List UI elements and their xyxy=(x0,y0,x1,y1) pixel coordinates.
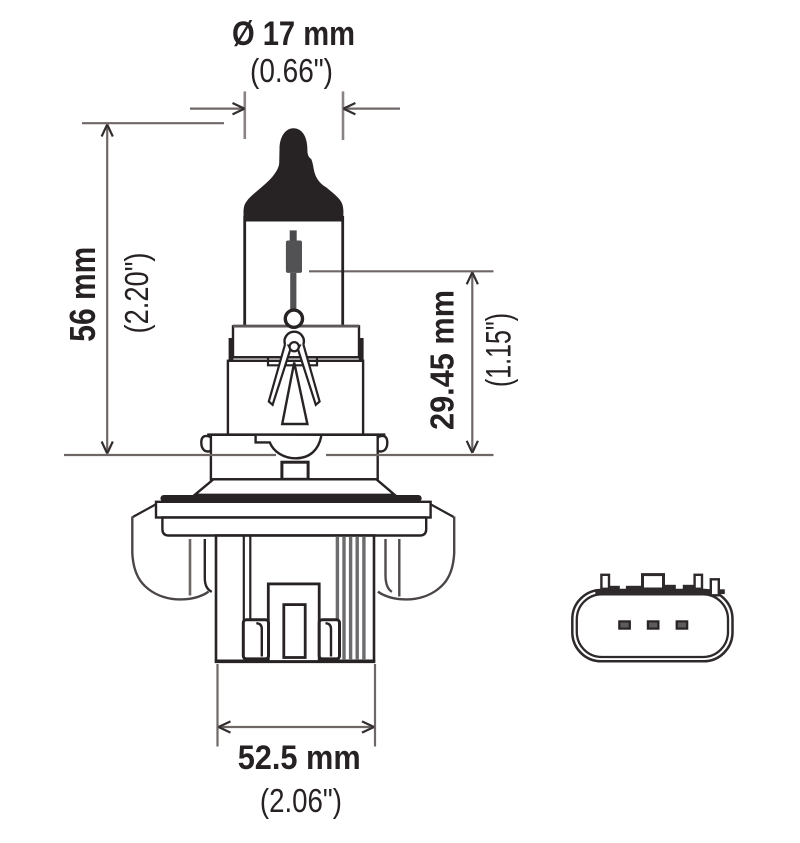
svg-text:(1.15"): (1.15") xyxy=(480,313,519,387)
svg-text:(0.66"): (0.66") xyxy=(250,52,333,89)
svg-text:(2.20"): (2.20") xyxy=(118,253,155,334)
svg-text:(2.06"): (2.06") xyxy=(260,782,342,819)
svg-text:29.45 mm: 29.45 mm xyxy=(424,290,461,430)
svg-text:56 mm: 56 mm xyxy=(62,247,103,342)
svg-text:Ø 17 mm: Ø 17 mm xyxy=(232,15,355,53)
svg-text:52.5 mm: 52.5 mm xyxy=(238,739,361,777)
